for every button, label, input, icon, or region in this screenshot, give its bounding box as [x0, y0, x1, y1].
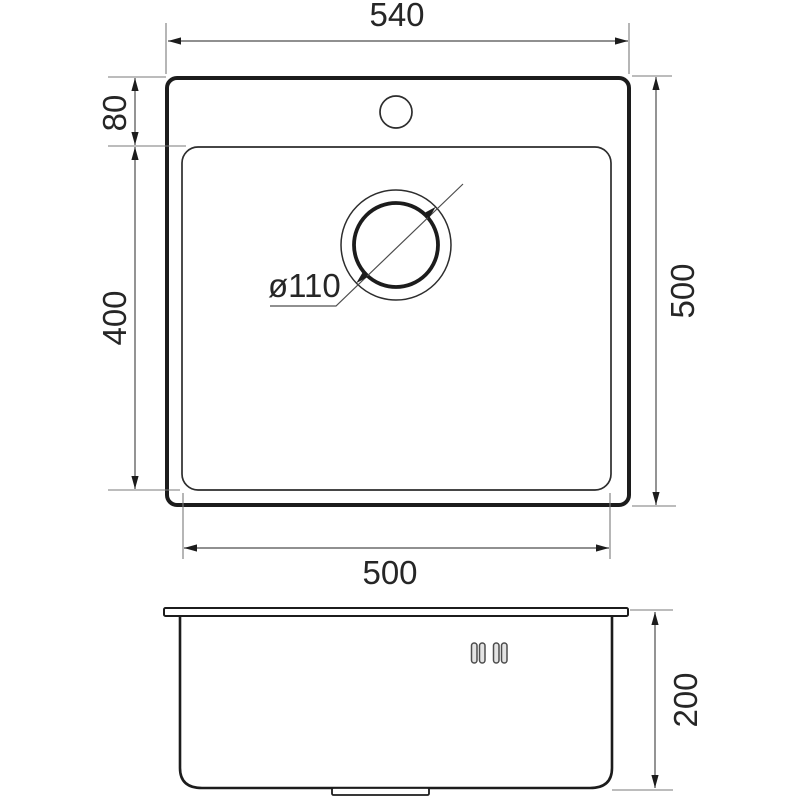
arrowhead-down — [651, 775, 658, 788]
dim-label-500-bottom: 500 — [362, 554, 417, 591]
arrowhead-up — [131, 78, 138, 91]
overflow-slot — [494, 643, 500, 663]
dim-label-200: 200 — [667, 672, 704, 727]
arrowhead-down — [131, 132, 138, 145]
dim-label-400: 400 — [96, 290, 133, 345]
sink-outer-outline — [167, 78, 629, 505]
dim-label-540: 540 — [369, 0, 424, 33]
overflow-slot — [480, 643, 486, 663]
arrowhead-right — [615, 37, 628, 44]
arrowhead-down — [652, 492, 659, 505]
arrowhead-up — [651, 612, 658, 625]
arrowhead-up — [131, 147, 138, 160]
dim-overall-width: 540 — [166, 0, 629, 74]
front-view — [164, 608, 628, 795]
bowl-body-outline — [180, 616, 612, 788]
arrowhead-left — [184, 544, 197, 551]
drawing-canvas: 540 80 400 500 500 ø — [0, 0, 800, 800]
dim-label-500-right: 500 — [664, 263, 701, 318]
arrowhead-down — [131, 476, 138, 489]
dim-label-drain: ø110 — [268, 267, 341, 304]
dim-bowl-width: 500 — [183, 493, 610, 591]
arrowhead-up — [652, 77, 659, 90]
top-view — [167, 78, 629, 505]
overflow-slot — [502, 643, 508, 663]
arrowhead-right — [596, 544, 609, 551]
dim-overall-depth: 500 — [632, 76, 701, 506]
dim-label-80: 80 — [96, 95, 133, 132]
dim-sink-height: 200 — [612, 610, 704, 790]
drain-fitting — [332, 788, 429, 795]
overflow-slot — [472, 643, 478, 663]
sink-technical-drawing: 540 80 400 500 500 ø — [0, 0, 800, 800]
rim-flange — [164, 608, 628, 616]
arrowhead-left — [168, 37, 181, 44]
